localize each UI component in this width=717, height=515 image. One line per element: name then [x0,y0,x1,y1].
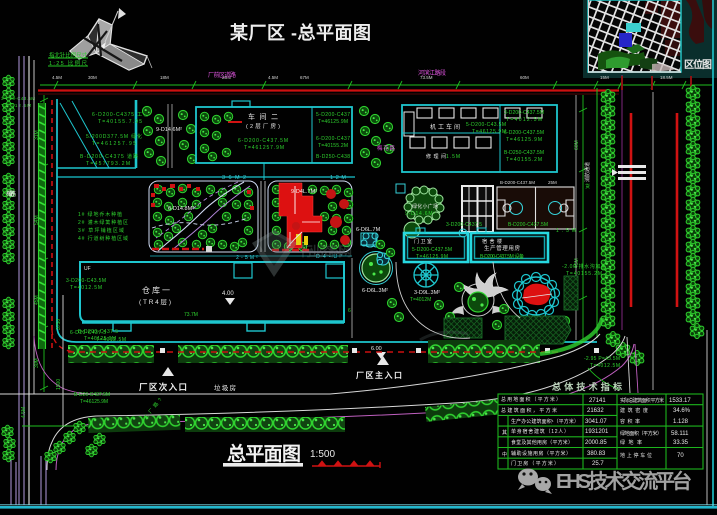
svg-text:6-D6L.3M²: 6-D6L.3M² [362,288,388,294]
svg-text:T=4012.5M: T=4012.5M [96,337,126,343]
svg-text:绿化小广场: 绿化小广场 [412,203,438,210]
svg-text:T=46125.9M: T=46125.9M [472,129,506,135]
svg-text:6-D200-C437.5M: 6-D200-C437.5M [504,130,544,136]
svg-text:3# 草坪铺植区域: 3# 草坪铺植区域 [78,227,124,234]
svg-text:1.5M: 1.5M [446,154,460,160]
svg-text:门卫室: 门卫室 [414,238,432,245]
svg-text:总平面图: 总平面图 [227,442,301,465]
svg-text:厂区主入口: 厂区主入口 [356,370,402,380]
svg-text:总用地面积（平方米）: 总用地面积（平方米） [501,396,561,403]
svg-text:指北针比例尺寸: 指北针比例尺寸 [49,51,87,59]
svg-text:其: 其 [502,430,507,436]
svg-text:6: 6 [348,308,351,314]
svg-text:-2.00 排水沟加盖: -2.00 排水沟加盖 [562,263,606,270]
svg-text:T=40155.2M: T=40155.2M [566,271,602,277]
svg-text:34.6%: 34.6% [673,408,691,414]
svg-text:总建筑面积，平方米: 总建筑面积，平方米 [501,407,557,414]
svg-text:B-D250-C438: B-D250-C438 [316,154,350,160]
svg-text:B-D200-C437.5M 设备: B-D200-C437.5M 设备 [480,253,524,260]
svg-text:6-D200-C437.5M: 6-D200-C437.5M [238,138,288,144]
svg-text:1:25 比例尺: 1:25 比例尺 [49,59,87,67]
svg-text:58.111: 58.111 [671,431,689,437]
svg-text:T=461257.95: T=461257.95 [92,141,136,147]
svg-text:380.83: 380.83 [587,451,606,457]
svg-text:实际总建筑面积 平方米: 实际总建筑面积 平方米 [620,397,664,404]
svg-text:1:500: 1:500 [310,449,335,460]
svg-text:5-D200-C43.5M: 5-D200-C43.5M [466,122,506,128]
svg-text:60M: 60M [574,140,580,150]
svg-text:25.7: 25.7 [592,461,604,467]
svg-text:9-D14.6M²: 9-D14.6M² [156,127,182,133]
svg-text:单身宿舍建筑（12人）: 单身宿舍建筑（12人） [511,428,569,435]
svg-text:辅助设施用房（平方米）: 辅助设施用房（平方米） [511,450,571,457]
svg-text:15M: 15M [600,75,609,80]
svg-text:60M: 60M [520,75,529,80]
svg-text:1500: 1500 [56,379,62,390]
svg-text:梅花路: 梅花路 [6,190,16,198]
svg-text:5/200D377.5M 绿化: 5/200D377.5M 绿化 [86,133,142,140]
svg-text:3-D200-C437.5: 3-D200-C437.5 [446,222,482,228]
svg-text:EHS技术交流平台: EHS技术交流平台 [556,469,692,493]
svg-text:地上停车位: 地上停车位 [620,452,652,459]
svg-text:-2.95 P=43.5M: -2.95 P=43.5M [584,356,620,362]
svg-text:1931201: 1931201 [585,429,609,435]
svg-text:T=4012.5M: T=4012.5M [590,363,620,369]
svg-text:5-D200-C437.5M: 5-D200-C437.5M [412,247,452,253]
svg-text:6-D200-C4375 工程: 6-D200-C4375 工程 [92,111,148,118]
svg-text:25M: 25M [548,180,557,185]
svg-text:机工车间: 机工车间 [430,123,460,131]
svg-text:某厂区 -总平面图: 某厂区 -总平面图 [230,22,371,43]
svg-text:(2层厂房): (2层厂房) [246,122,280,130]
svg-text:厂前区道路: 厂前区道路 [208,71,236,79]
svg-text:B-D250-C437.5M: B-D250-C437.5M [504,150,544,156]
svg-text:修理间: 修理间 [426,153,446,160]
svg-text:27141: 27141 [589,398,606,404]
svg-text:B-D200-C4375 道路: B-D200-C4375 道路 [80,153,138,160]
svg-text:T=40155.7.95: T=40155.7.95 [98,119,142,125]
svg-text:食堂及其他用房（平方米）: 食堂及其他用房（平方米） [511,439,573,446]
svg-text:仓库一: 仓库一 [142,285,170,295]
svg-text:9-D4L.7M²: 9-D4L.7M² [291,189,317,195]
svg-text:33.35: 33.35 [673,440,689,446]
svg-text:宿舍楼: 宿舍楼 [482,238,502,245]
svg-text:厂区次入口: 厂区次入口 [139,382,187,392]
svg-text:5-D200-C437: 5-D200-C437 [316,112,350,118]
svg-text:生产管理用房: 生产管理用房 [484,244,520,252]
svg-text:B-D200-C437.5M: B-D200-C437.5M [508,222,548,228]
svg-text:67M: 67M [300,75,309,80]
svg-text:1.128: 1.128 [673,419,689,425]
svg-text:4.5M: 4.5M [21,407,27,418]
svg-text:T=4012M: T=4012M [410,297,431,303]
svg-text:T=46125.9M: T=46125.9M [318,119,348,125]
svg-text:门卫房（平方米）: 门卫房（平方米） [511,460,559,467]
svg-text:B-D200-C437.5M: B-D200-C437.5M [500,180,535,185]
svg-text:21632: 21632 [587,408,604,414]
svg-text:3-D200-C437.5M: 3-D200-C437.5M [504,110,544,116]
svg-text:T=4012.5M: T=4012.5M [70,285,102,291]
svg-text:4.5M: 4.5M [52,75,62,80]
svg-text:生产办公建筑面积¹（平方米）: 生产办公建筑面积¹（平方米） [511,418,579,425]
svg-text:区位图: 区位图 [684,58,712,71]
svg-text:3750: 3750 [56,319,62,330]
svg-text:T=40155.2M: T=40155.2M [506,157,542,163]
svg-text:9-D14.6M²: 9-D14.6M² [405,211,435,217]
svg-text:车间二: 车间二 [248,112,278,121]
svg-text:行业资料网: 行业资料网 [299,244,352,259]
svg-text:中: 中 [502,451,507,458]
svg-text:垃圾房: 垃圾房 [214,383,236,392]
svg-text:1# 绿地乔木种植: 1# 绿地乔木种植 [78,211,122,218]
svg-text:6-D6L.7M: 6-D6L.7M [356,227,381,233]
svg-text:73.7M: 73.7M [184,312,198,318]
svg-text:T=46125.9M: T=46125.9M [416,254,448,260]
svg-text:绿地率: 绿地率 [620,439,642,446]
svg-text:4.00: 4.00 [222,291,234,297]
svg-text:30M: 30M [88,75,97,80]
svg-text:6-D200-C437: 6-D200-C437 [316,136,350,142]
svg-text:18M: 18M [160,75,169,80]
svg-text:T=457793.2M: T=457793.2M [86,161,130,167]
svg-text:6-D20-C437.5: 6-D20-C437.5 [70,330,106,336]
svg-text:1533.17: 1533.17 [669,398,691,404]
svg-text:消防通道: 消防通道 [584,162,591,182]
svg-text:4# 行道树种植区域: 4# 行道树种植区域 [78,235,128,242]
svg-text:70: 70 [677,453,684,459]
svg-text:6.00: 6.00 [371,346,382,352]
svg-text:(TR4层): (TR4层) [139,298,171,306]
svg-text:UF: UF [84,266,91,272]
svg-text:3-D9L.3M²: 3-D9L.3M² [414,290,440,296]
svg-text:B-D20-C437.5M: B-D20-C437.5M [74,392,110,398]
svg-text:12M: 12M [330,175,346,181]
svg-text:容积率: 容积率 [620,418,640,425]
svg-text:T=46125.9M: T=46125.9M [506,137,542,143]
svg-text:T=461257.9M: T=461257.9M [244,145,284,151]
svg-text:河滨江路段: 河滨江路段 [418,69,446,77]
svg-text:T=46125.9M: T=46125.9M [80,399,108,405]
svg-text:3041.07: 3041.07 [585,419,607,425]
svg-text:货: 货 [585,183,590,190]
svg-text:2# 灌木绿篱种植区: 2# 灌木绿篱种植区 [78,219,128,226]
svg-text:18.5M: 18.5M [660,75,673,80]
svg-text:梅花路: 梅花路 [377,144,395,152]
svg-text:30M: 30M [34,358,40,368]
svg-text:4.5M: 4.5M [268,75,278,80]
svg-text:绿地面积（平方米）: 绿地面积（平方米） [620,430,662,437]
svg-text:3-D200-C43.5M: 3-D200-C43.5M [66,278,106,284]
svg-text:T=40155.2M: T=40155.2M [318,143,348,149]
svg-text:2000.85: 2000.85 [585,440,607,446]
